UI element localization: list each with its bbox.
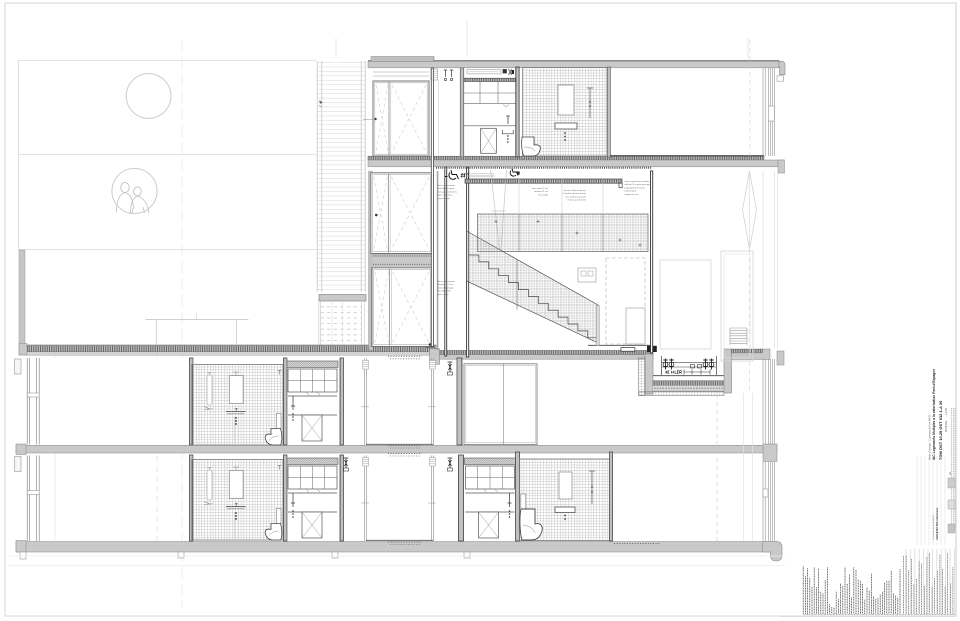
svg-text:dynamo qu 7cm: dynamo qu 7cm bbox=[438, 284, 454, 286]
svg-text:Maitre d'ouvrage - Commune d: Maitre d'ouvrage - Commune de Pont 64000 bbox=[929, 414, 932, 460]
svg-text:apres interieurs: apres interieurs bbox=[438, 194, 454, 197]
svg-text:ues nationen de juste: ues nationen de juste bbox=[565, 195, 587, 198]
svg-text:apre cadge: apre cadge bbox=[438, 293, 450, 296]
svg-text:vide de 7cm pour percage: vide de 7cm pour percage bbox=[625, 183, 651, 186]
svg-text:05.05.20u: 05.05.20u bbox=[945, 420, 948, 432]
svg-text:chapes en cur: chapes en cur bbox=[625, 193, 639, 196]
svg-text:Serre mecanisme: Serre mecanisme bbox=[438, 280, 456, 283]
svg-text:Vacme l'Odie en peson: Vacme l'Odie en peson bbox=[564, 190, 587, 192]
svg-text:vide de 7cm pour: vide de 7cm pour bbox=[438, 187, 455, 190]
svg-text:percage promenons: percage promenons bbox=[438, 190, 458, 193]
svg-text:Serre superieure remonte: Serre superieure remonte bbox=[625, 180, 651, 183]
svg-text:22 avenue du pont 64000: 22 avenue du pont 64000 bbox=[932, 514, 935, 540]
svg-text:copula lacon: copula lacon bbox=[438, 198, 451, 200]
svg-text:des dormants: des dormants bbox=[438, 290, 452, 293]
svg-text:IBC Logements Multiples a la v: IBC Logements Multiples a la valorisatio… bbox=[932, 369, 936, 460]
svg-text:Lamalne ofe bas monte: Lamalne ofe bas monte bbox=[563, 192, 587, 195]
svg-text:Gain reba 15 cm: Gain reba 15 cm bbox=[532, 187, 548, 190]
svg-text:entierement: entierement bbox=[625, 190, 637, 193]
svg-text:chenus que fenetre: chenus que fenetre bbox=[567, 199, 587, 202]
svg-text:prolongement retours: prolongement retours bbox=[625, 186, 647, 189]
svg-text:+ 1:50: + 1:50 bbox=[945, 407, 948, 415]
svg-text:pour demontage: pour demontage bbox=[438, 286, 455, 289]
svg-text:contenir 11 cm: contenir 11 cm bbox=[534, 190, 548, 193]
svg-text:50 caught: 50 caught bbox=[538, 193, 548, 196]
svg-text:ARCHITECTES urbanisme: ARCHITECTES urbanisme bbox=[935, 507, 939, 540]
svg-text:TOM OST 10.29 OST 012 1-A 20: TOM OST 10.29 OST 012 1-A 20 bbox=[938, 400, 943, 460]
svg-text:Serre mecanisme: Serre mecanisme bbox=[438, 184, 456, 187]
